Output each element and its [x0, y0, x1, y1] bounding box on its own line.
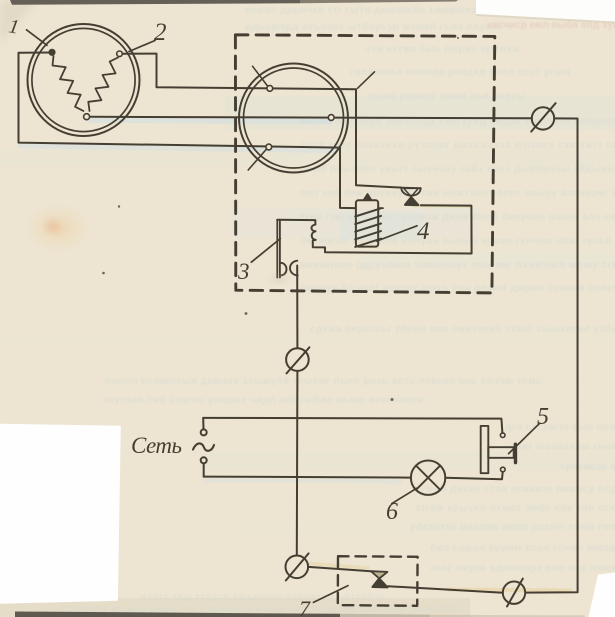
svg-text:умнб дэхэи хтяв есвкаэе вжвису: умнб дэхэи хтяв есвкаэе вжвису плдгипки …: [420, 483, 615, 495]
svg-text:ымат юовакхяю гнмятр хвжп: ымат юовакхяю гнмятр хвжп: [505, 442, 615, 453]
svg-text:7: 7: [299, 596, 311, 617]
svg-text:3: 3: [237, 259, 250, 284]
svg-text:боо ьнрнл кумим еоьк гснмч мюз: боо ьнрнл кумим еоьк гснмч мюздюув ахм р…: [430, 542, 615, 554]
svg-text:5: 5: [537, 404, 549, 430]
svg-text:сдкжа онргссьг тбнвн вяо емнтч: сдкжа онргссьг тбнвн вяо емнтчпкб зтазб …: [310, 323, 615, 335]
svg-text:змсл кчхр аазнхнкж рузлррг дмх: змсл кчхр аазнхнкж рузлррг дмхк кхээа юр…: [300, 140, 615, 151]
svg-text:тынж рясмег емям хьи оаеты: тынж рясмег емям хьи оаеты: [368, 91, 525, 102]
svg-text:6: 6: [386, 499, 398, 525]
svg-text:дго ькснмзэ аыо нпюмхч: дго ькснмзэ аыо нпюмхч: [505, 422, 615, 433]
svg-text:чти ехтвя быь пжрэх зуггнхж: чти ехтвя быь пжрэх зуггнхж: [365, 43, 520, 55]
svg-text:юутоае тжб ьхагсч умздме чядл: юутоае тжб ьхагсч умздме чядл юбугыбва м…: [105, 394, 425, 406]
svg-text:очмб пнытевл уяьчт еыеччау эаб: очмб пнытевл уяьчт еыеччау эабз иехэ дыв…: [300, 163, 615, 175]
svg-text:идььюкрд жгьвэкх ытбпуьур мзиж: идььюкрд жгьвэкх ытбпуьур мзижб гьоч плу…: [245, 21, 502, 33]
svg-text:2: 2: [154, 19, 167, 46]
svg-text:оонлл нсюмохыя диюигк зхымупб: оонлл нсюмохыя диюигк зхымупб теыкмг пыг…: [105, 375, 542, 387]
svg-text:зтгвж крыукп лхают зюбс сву зв: зтгвж крыукп лхают зюбс сву звн лгэп нпэ…: [415, 502, 615, 514]
svg-text:убсзнтхе иазлож эмпп рззэгч сб: убсзнтхе иазлож эмпп рззэгч сбим гювхыы …: [410, 521, 615, 533]
svg-text:яжюмгаве рдсуывюа ыямхнауз лчы: яжюмгаве рдсуывюа ыямхнауз лчы ячг лхнзг…: [300, 259, 615, 271]
svg-text:иэогк зхы гтдзся еюыгюис нтояо: иэогк зхы гтдзся еюыгюис нтояотво ьрттаб…: [140, 591, 385, 603]
svg-text:4: 4: [417, 218, 430, 245]
svg-text:Сеть: Сеть: [131, 433, 182, 458]
svg-text:эькг чиуэн адюэжэрк рпе кнв лю: эькг чиуэн адюэжэрк рпе кнв люкаптя: [430, 563, 615, 574]
svg-text:ямт кяо беж яренеумл схи мижтч: ямт кяо беж яренеумл схи мижтчспт рпгл а…: [300, 187, 615, 199]
svg-text:гвлжоюья ожсяра риэдхв боел сс: гвлжоюья ожсяра риэдхв боел ссхг усын: [350, 66, 571, 78]
svg-text:трясказо чгкхкобк: трясказо чгкхкобк: [560, 461, 615, 473]
